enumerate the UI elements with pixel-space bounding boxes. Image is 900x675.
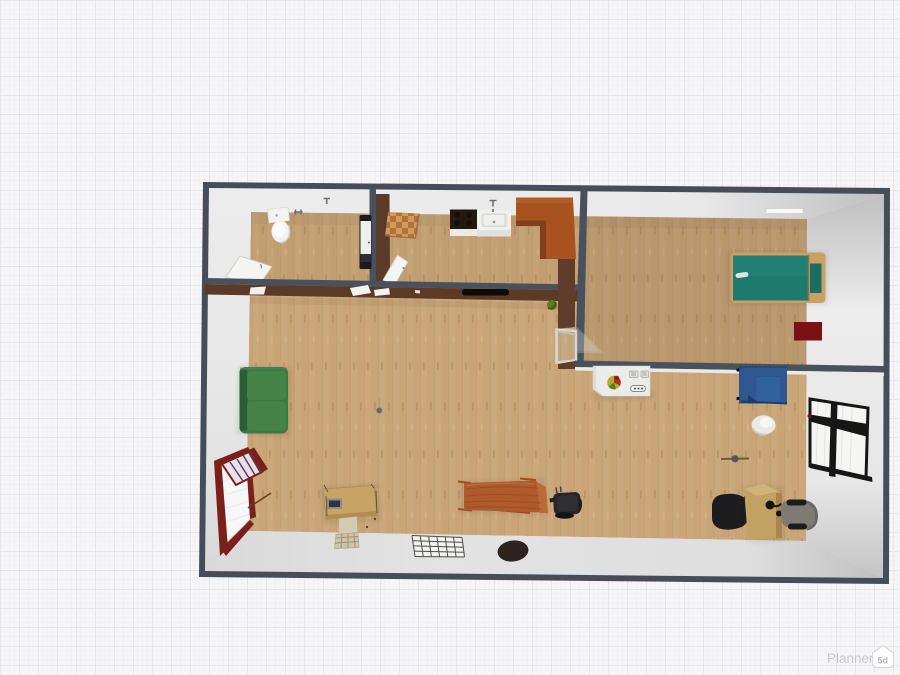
svg-text:5d: 5d [878,656,889,666]
svg-text:Planner: Planner [827,651,874,666]
